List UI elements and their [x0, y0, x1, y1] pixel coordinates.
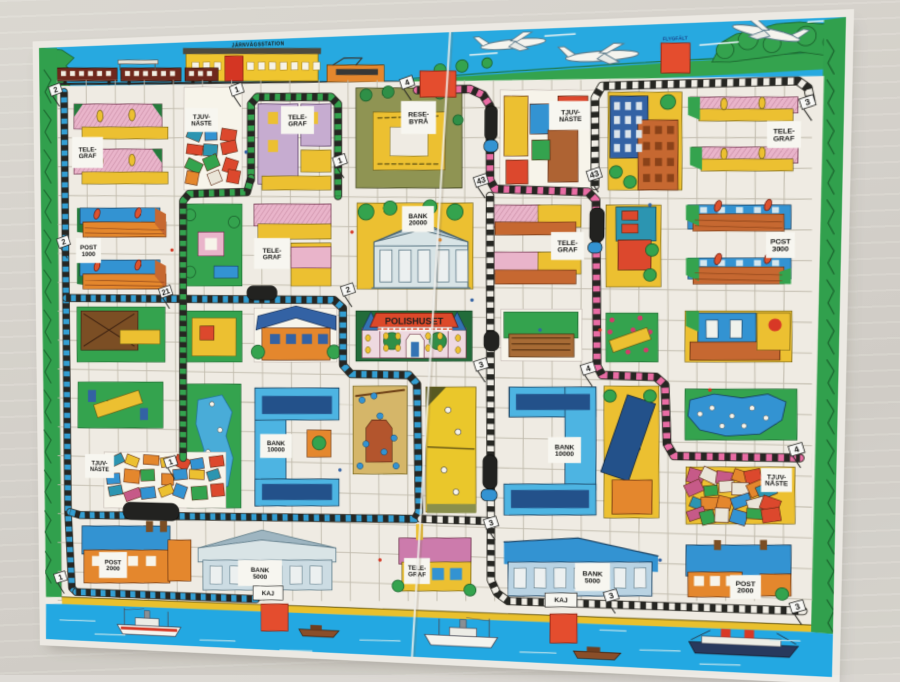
- svg-text:KAJ: KAJ: [554, 597, 568, 605]
- svg-text:KAJ: KAJ: [262, 590, 274, 598]
- svg-text:BANK10000: BANK10000: [555, 444, 575, 459]
- svg-text:RESE-BYRÅ: RESE-BYRÅ: [408, 111, 429, 126]
- svg-text:TJUV-NÄSTE: TJUV-NÄSTE: [559, 110, 582, 124]
- svg-text:TJUV-NÄSTE: TJUV-NÄSTE: [191, 115, 211, 128]
- svg-text:TELE-GRAF: TELE-GRAF: [557, 240, 577, 255]
- svg-text:BANK5000: BANK5000: [251, 567, 270, 581]
- svg-text:POST1000: POST1000: [80, 244, 97, 258]
- svg-text:TELE-GRAF: TELE-GRAF: [773, 128, 795, 144]
- svg-text:POST2000: POST2000: [105, 559, 122, 573]
- svg-text:FLYGFÄLT: FLYGFÄLT: [663, 35, 689, 42]
- svg-text:BANK20000: BANK20000: [409, 213, 429, 227]
- svg-text:TELE-GRAF: TELE-GRAF: [79, 146, 97, 160]
- svg-text:POST3000: POST3000: [770, 238, 791, 253]
- svg-text:TELE-GRAF: TELE-GRAF: [288, 114, 307, 129]
- svg-text:TJUV-NÄSTE: TJUV-NÄSTE: [765, 475, 788, 488]
- svg-text:POST2000: POST2000: [735, 580, 755, 595]
- svg-text:BANK5000: BANK5000: [582, 570, 603, 585]
- svg-text:TJUV-NÄSTE: TJUV-NÄSTE: [90, 461, 109, 473]
- svg-text:BANK10000: BANK10000: [267, 440, 286, 454]
- svg-text:TELE-GRAF: TELE-GRAF: [263, 247, 282, 261]
